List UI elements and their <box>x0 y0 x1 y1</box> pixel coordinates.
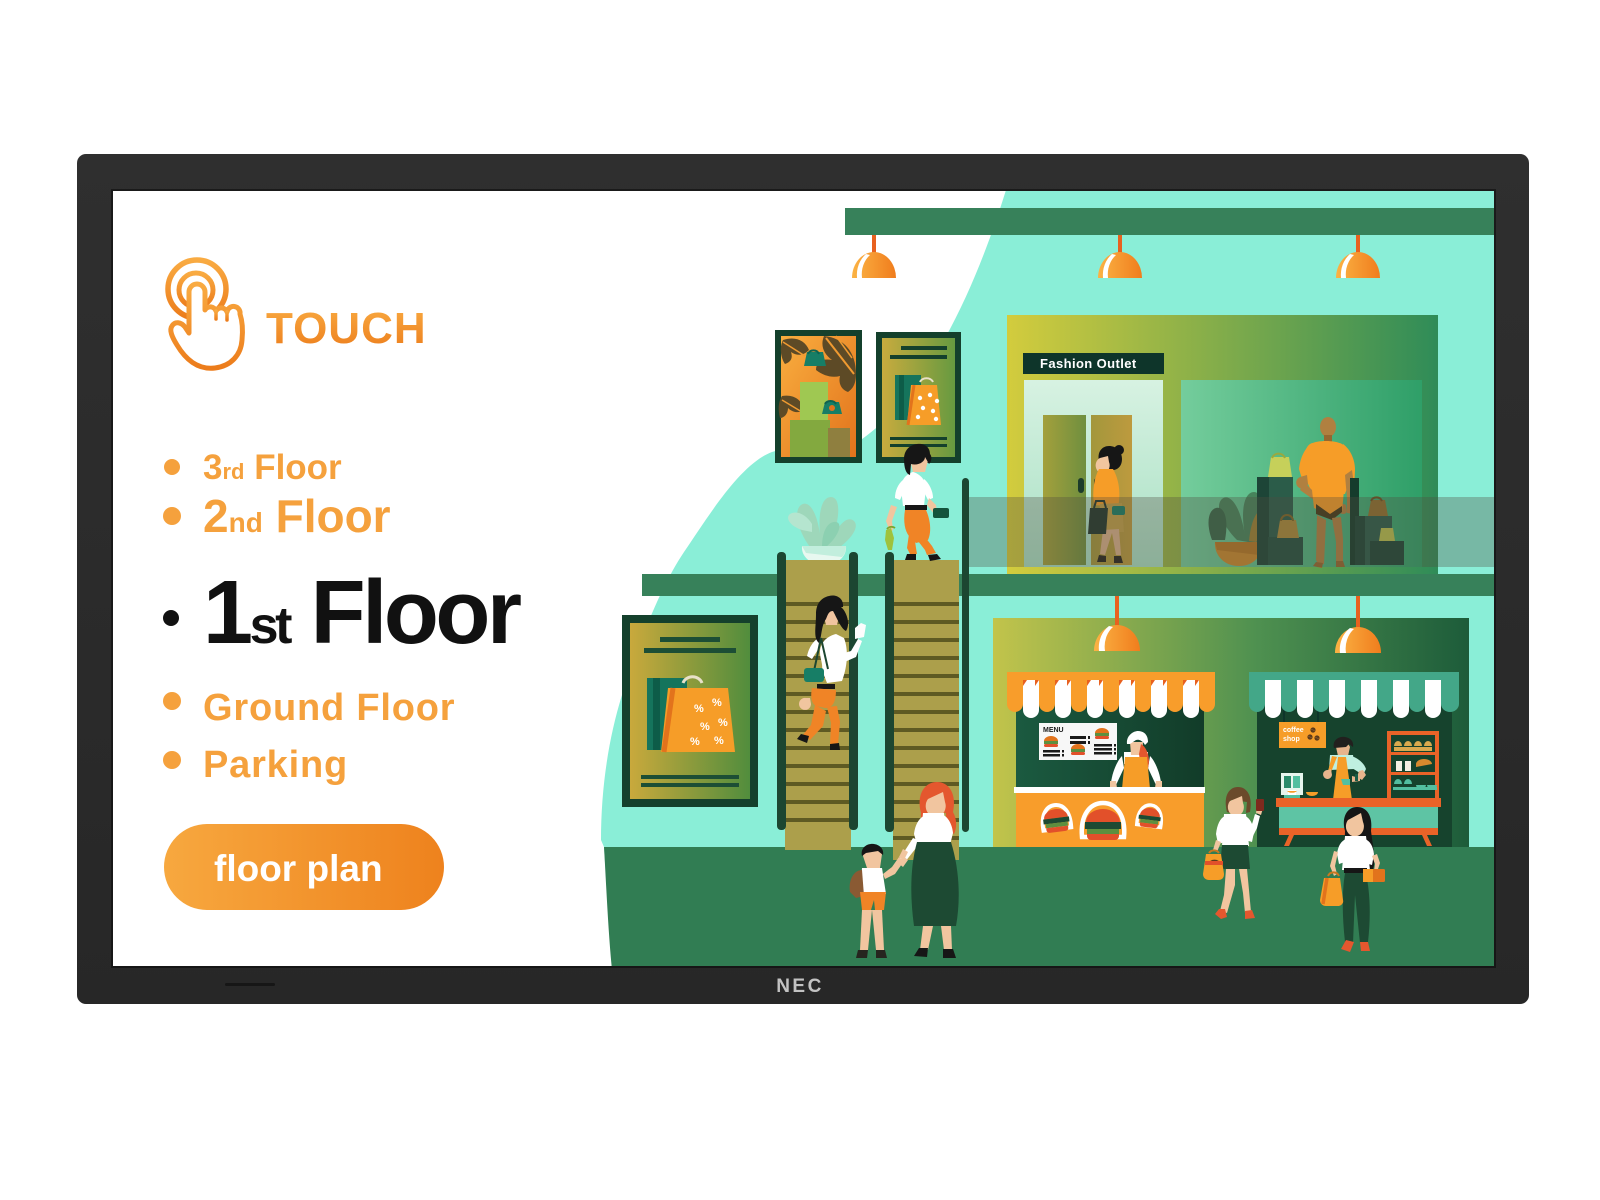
svg-text:coffee: coffee <box>1283 727 1304 734</box>
svg-text:%: % <box>718 717 728 729</box>
svg-text:MENU: MENU <box>1043 727 1064 734</box>
svg-text:shop: shop <box>1283 736 1300 743</box>
svg-text:3rd Floor: 3rd Floor <box>203 448 342 487</box>
svg-text:%: % <box>694 703 704 715</box>
svg-text:Parking: Parking <box>203 744 348 786</box>
svg-text:1st Floor: 1st Floor <box>203 563 522 663</box>
svg-text:2nd Floor: 2nd Floor <box>203 490 391 542</box>
svg-text:Ground Floor: Ground Floor <box>203 687 455 729</box>
svg-text:floor plan: floor plan <box>214 848 383 889</box>
svg-text:%: % <box>714 735 724 747</box>
svg-text:%: % <box>690 736 700 748</box>
svg-text:Fashion Outlet: Fashion Outlet <box>1040 356 1137 371</box>
svg-text:%: % <box>712 697 722 709</box>
svg-text:TOUCH: TOUCH <box>266 304 427 353</box>
svg-text:%: % <box>700 721 710 733</box>
